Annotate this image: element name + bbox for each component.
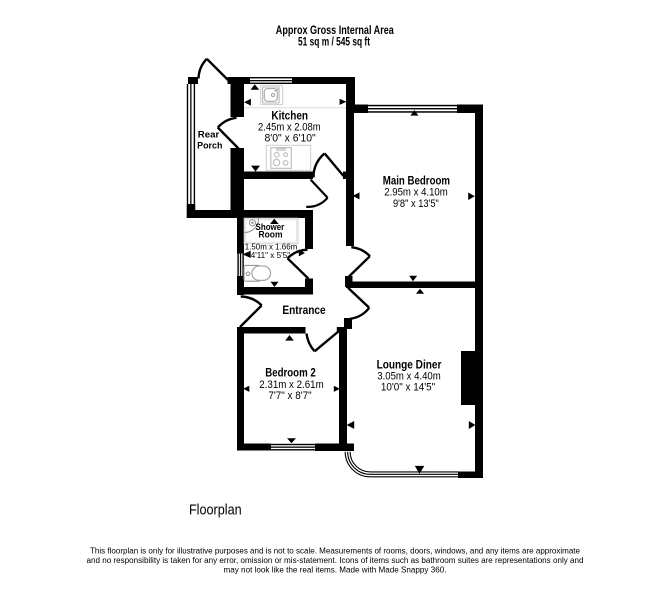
svg-text:9'8" x 13'5": 9'8" x 13'5"	[393, 198, 439, 210]
svg-text:Entrance: Entrance	[282, 303, 326, 317]
svg-text:2.95m x 4.10m: 2.95m x 4.10m	[384, 187, 448, 199]
svg-text:Lounge Diner: Lounge Diner	[377, 357, 442, 371]
svg-text:2.45m x 2.08m: 2.45m x 2.08m	[258, 122, 321, 134]
svg-text:10'0" x 14'5": 10'0" x 14'5"	[381, 382, 435, 394]
svg-text:and no responsibility is taken: and no responsibility is taken for any e…	[87, 556, 584, 565]
svg-text:This floorplan is only for ill: This floorplan is only for illustrative …	[90, 547, 581, 556]
svg-text:Rear: Rear	[198, 129, 220, 139]
svg-text:Porch: Porch	[197, 140, 222, 150]
svg-text:4'11" x 5'5": 4'11" x 5'5"	[251, 250, 290, 260]
svg-text:may not look like the real ite: may not look like the real items. Made w…	[224, 566, 447, 575]
svg-text:Bedroom 2: Bedroom 2	[265, 366, 316, 380]
svg-text:8'0" x 6'10": 8'0" x 6'10"	[265, 133, 316, 145]
svg-text:Kitchen: Kitchen	[271, 108, 308, 122]
svg-text:2.31m x 2.61m: 2.31m x 2.61m	[259, 379, 323, 391]
svg-text:Main Bedroom: Main Bedroom	[383, 174, 450, 188]
svg-text:Room: Room	[259, 230, 283, 240]
svg-text:7'7" x 8'7": 7'7" x 8'7"	[268, 390, 311, 402]
svg-text:Floorplan: Floorplan	[189, 502, 242, 519]
svg-text:51 sq m / 545 sq ft: 51 sq m / 545 sq ft	[298, 34, 370, 48]
svg-text:3.05m x 4.40m: 3.05m x 4.40m	[377, 371, 441, 383]
